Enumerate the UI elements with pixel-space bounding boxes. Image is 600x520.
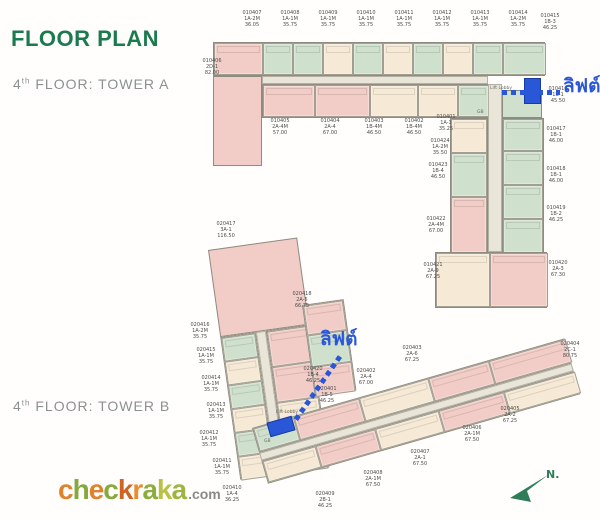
unit-cell — [451, 153, 487, 197]
tower-b-heading: 4th FLOOR: TOWER B — [13, 398, 170, 414]
unit-cell — [451, 119, 487, 153]
lift-annotation-a: ลิฟต์ — [563, 76, 600, 96]
unit-cell — [503, 43, 546, 75]
unit-cell — [503, 151, 543, 185]
tower-a-bottom-row — [262, 84, 488, 118]
unit-label: 0204072A-167.50 — [398, 449, 442, 468]
tower-a-left-column — [450, 118, 488, 252]
unit-cell — [263, 85, 315, 117]
unit-label: 0204121A-1M35.75 — [187, 430, 231, 449]
unit-cell — [293, 43, 323, 75]
unit-cell — [503, 119, 543, 151]
unit-label: 0104071A-2M36.05 — [230, 10, 274, 29]
unit-label: 0204082A-1M67.50 — [351, 470, 395, 489]
floor-plan-page: FLOOR PLAN 4th FLOOR: TOWER A 4th FLOOR:… — [0, 0, 600, 520]
unit-cell — [443, 43, 473, 75]
logo-letter: a — [142, 474, 157, 506]
unit-label: 0204173A-1116.50 — [204, 221, 248, 240]
logo-letter: c — [103, 474, 118, 506]
unit-label: 0104121A-1M35.75 — [420, 10, 464, 29]
tower-a-top-row — [213, 42, 545, 76]
compass-north: N. — [508, 468, 578, 513]
unit-label: 0104091A-1M35.75 — [306, 10, 350, 29]
unit-cell — [214, 43, 263, 75]
logo-letter: h — [73, 474, 89, 506]
unit-cell — [413, 43, 443, 75]
unit-label: 0104052A-4M57.00 — [258, 118, 302, 137]
lift-dots-a — [502, 90, 560, 95]
unit-cell — [213, 76, 262, 166]
unit-label: 0204032A-667.25 — [390, 345, 434, 364]
unit-cell — [208, 237, 309, 337]
tower-a-bottom-block — [435, 252, 547, 308]
logo-letter: k — [118, 474, 133, 506]
unit-label: 0204161A-2M35.75 — [178, 322, 222, 341]
unit-cell — [315, 85, 370, 117]
unit-cell — [451, 197, 487, 253]
unit-cell — [436, 253, 490, 307]
unit-label: 0104141A-2M35.75 — [496, 10, 540, 29]
compass-label: N. — [546, 468, 559, 481]
unit-cell — [323, 43, 353, 75]
unit-cell — [370, 85, 418, 117]
unit-label: 0104021B-4M46.50 — [392, 118, 436, 137]
gb-label-b: GB — [264, 439, 271, 444]
unit-cell — [503, 219, 543, 253]
unit-label: 0104111A-1M35.75 — [382, 10, 426, 29]
unit-cell — [263, 43, 293, 75]
unit-cell — [418, 85, 458, 117]
tower-a-right-column — [502, 118, 544, 252]
corridor — [262, 76, 488, 84]
unit-label: 0104031B-4M46.50 — [352, 118, 396, 137]
logo-letter: e — [89, 474, 104, 506]
unit-label: 0104042A-467.00 — [308, 118, 352, 137]
unit-cell — [458, 85, 489, 117]
logo-letter: a — [171, 474, 186, 506]
checkraka-logo[interactable]: checkraka.com — [58, 474, 221, 506]
unit-label: 0204092B-146.25 — [303, 491, 347, 510]
unit-cell — [503, 185, 543, 219]
lift-annotation-b: ลิฟต์ — [320, 329, 357, 349]
logo-suffix: .com — [188, 486, 221, 502]
unit-cell — [353, 43, 383, 75]
page-title: FLOOR PLAN — [11, 26, 159, 52]
tower-a-heading: 4th FLOOR: TOWER A — [13, 76, 169, 92]
unit-cell — [383, 43, 413, 75]
logo-letter: c — [58, 474, 73, 506]
unit-label: 0104101A-1M35.75 — [344, 10, 388, 29]
unit-cell — [473, 43, 503, 75]
gb-label-a: GB — [477, 110, 484, 115]
unit-label: 0104131A-1M35.75 — [458, 10, 502, 29]
unit-cell — [490, 253, 548, 307]
logo-letter: r — [132, 474, 142, 506]
unit-label: 0104081A-1M35.75 — [268, 10, 312, 29]
logo-letter: k — [157, 474, 172, 506]
corridor — [488, 84, 502, 252]
unit-label: 0104151B-346.25 — [528, 13, 572, 32]
